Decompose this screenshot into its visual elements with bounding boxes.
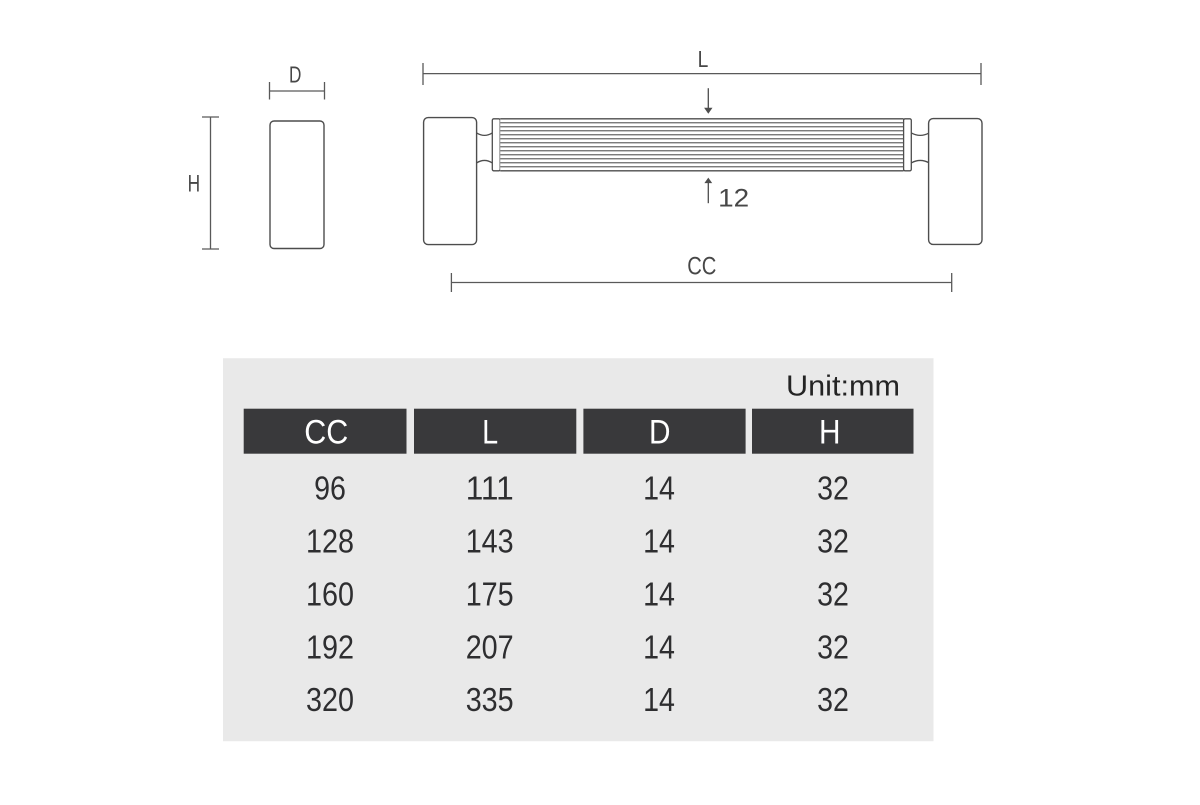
svg-text:96: 96 (314, 471, 346, 508)
svg-text:128: 128 (306, 524, 354, 561)
svg-text:D: D (289, 61, 301, 87)
svg-text:14: 14 (643, 682, 675, 719)
svg-text:32: 32 (817, 629, 849, 666)
svg-text:L: L (482, 413, 498, 451)
svg-text:32: 32 (817, 682, 849, 719)
svg-text:D: D (649, 413, 671, 451)
svg-text:207: 207 (466, 629, 514, 666)
svg-text:CC: CC (304, 413, 348, 451)
svg-text:192: 192 (306, 629, 354, 666)
svg-text:14: 14 (643, 471, 675, 508)
svg-text:L: L (698, 46, 709, 72)
svg-text:32: 32 (817, 524, 849, 561)
svg-text:160: 160 (306, 576, 354, 613)
svg-text:14: 14 (643, 576, 675, 613)
svg-text:320: 320 (306, 682, 354, 719)
svg-text:14: 14 (643, 629, 675, 666)
svg-text:14: 14 (643, 524, 675, 561)
svg-text:12: 12 (718, 185, 749, 213)
svg-text:111: 111 (466, 471, 514, 508)
svg-text:32: 32 (817, 471, 849, 508)
svg-text:CC: CC (687, 252, 716, 280)
svg-text:175: 175 (466, 576, 514, 613)
svg-text:H: H (819, 413, 841, 451)
svg-text:H: H (188, 171, 201, 198)
svg-text:32: 32 (817, 576, 849, 613)
svg-text:Unit:mm: Unit:mm (786, 371, 900, 403)
svg-text:335: 335 (466, 682, 514, 719)
svg-text:143: 143 (466, 524, 514, 561)
